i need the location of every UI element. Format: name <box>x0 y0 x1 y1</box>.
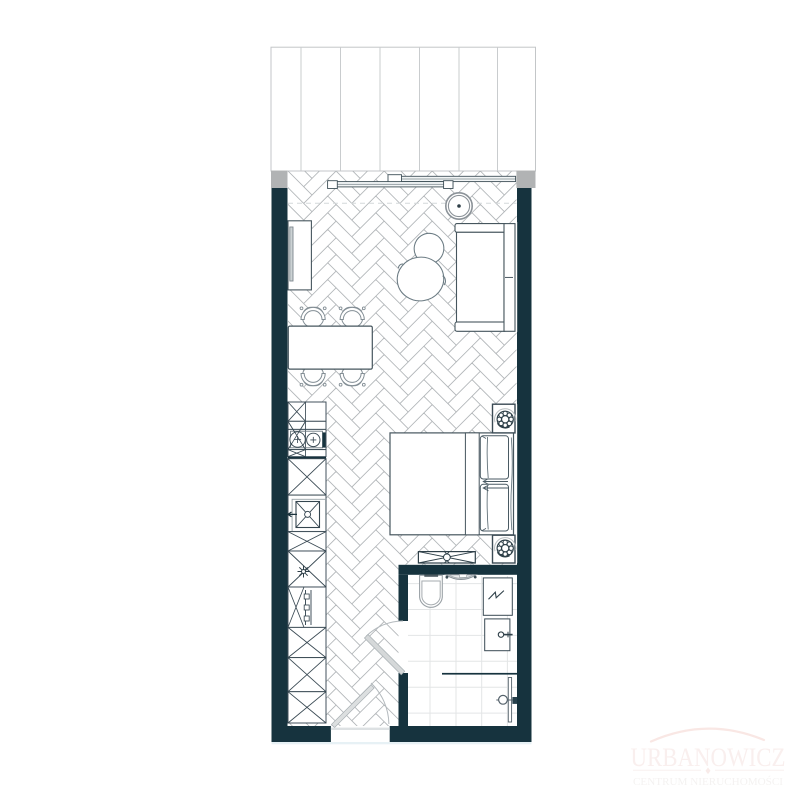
svg-text:CENTRUM NIERUCHOMOŚCI: CENTRUM NIERUCHOMOŚCI <box>633 776 783 788</box>
